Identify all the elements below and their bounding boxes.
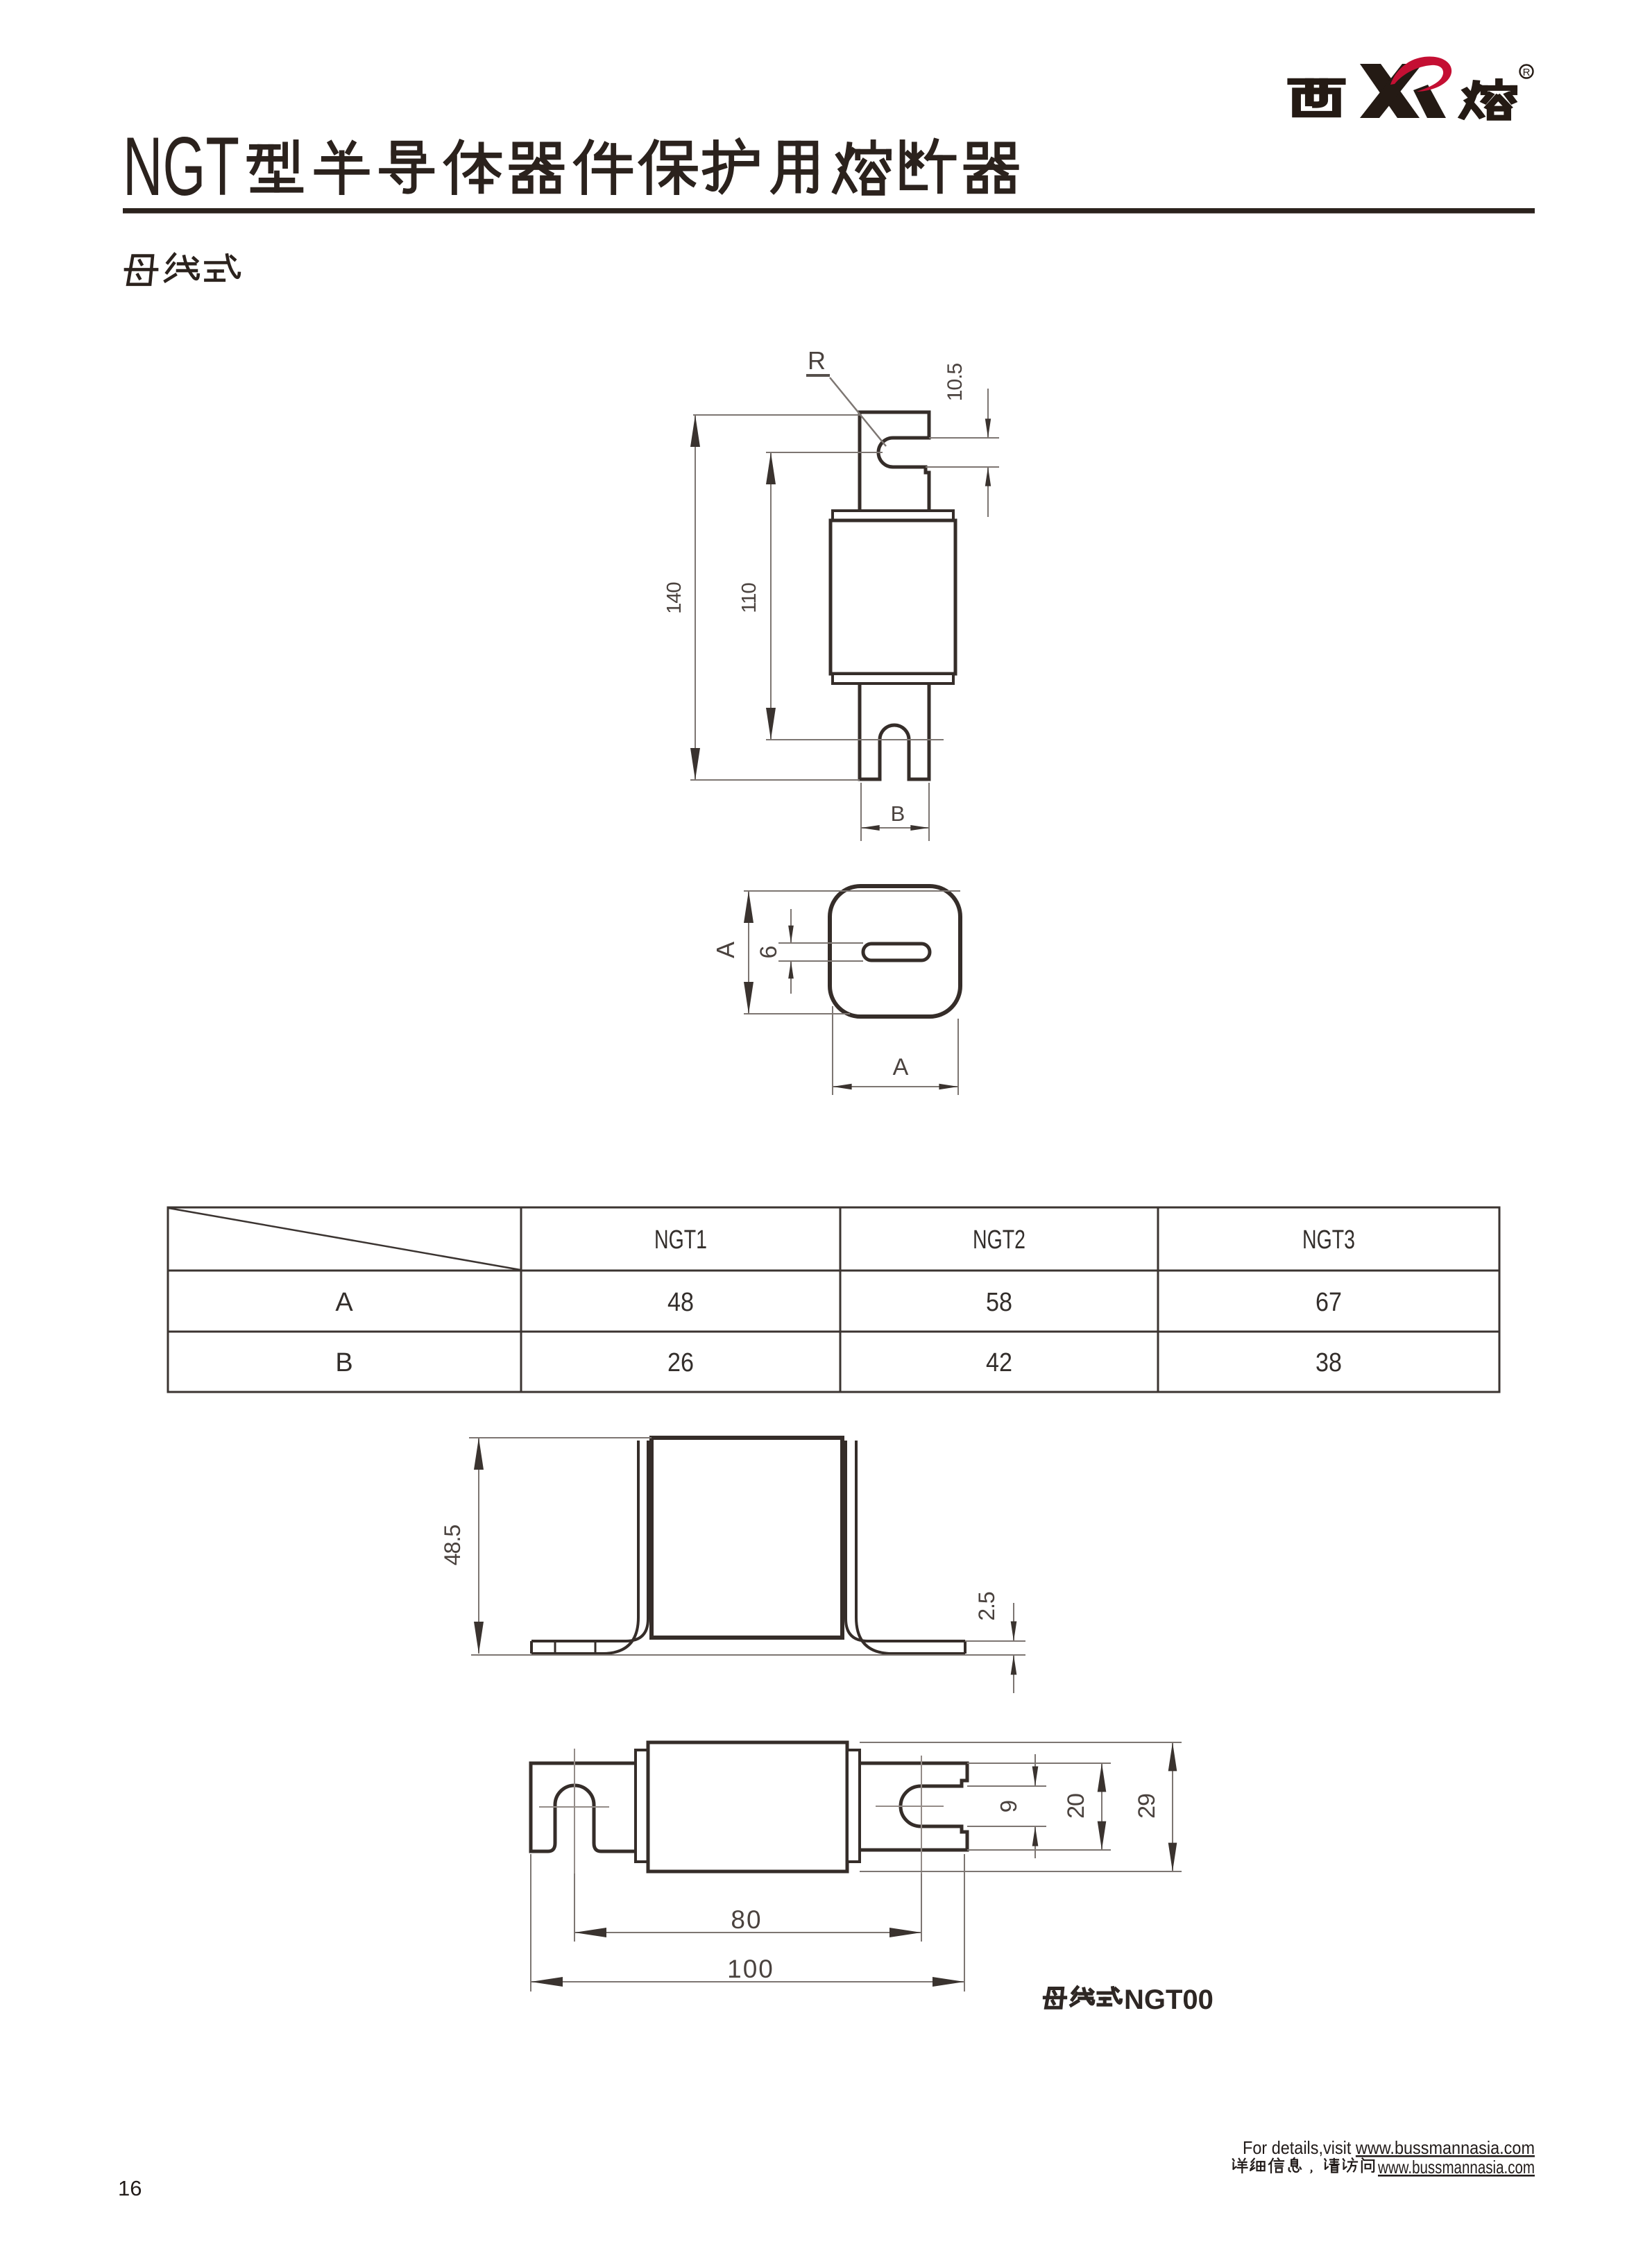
svg-text:48.5: 48.5 <box>440 1525 465 1565</box>
svg-text:42: 42 <box>986 1348 1012 1377</box>
svg-text:A: A <box>893 1054 909 1080</box>
svg-text:2.5: 2.5 <box>974 1592 999 1621</box>
svg-text:For details,visit www.bussmann: For details,visit www.bussmannasia.com <box>1243 2137 1535 2158</box>
svg-text:B: B <box>335 1348 352 1377</box>
svg-text:67: 67 <box>1315 1288 1342 1317</box>
svg-text:9: 9 <box>996 1800 1021 1812</box>
svg-text:10.5: 10.5 <box>944 363 966 401</box>
svg-text:80: 80 <box>731 1905 762 1934</box>
svg-text:B: B <box>891 801 905 826</box>
svg-text:26: 26 <box>667 1348 694 1377</box>
svg-text:NGT00: NGT00 <box>1124 1985 1214 2015</box>
svg-text:NGT3: NGT3 <box>1302 1225 1355 1255</box>
svg-text:NGT1: NGT1 <box>654 1225 707 1255</box>
svg-text:29: 29 <box>1134 1794 1160 1819</box>
svg-text:110: 110 <box>738 583 760 613</box>
svg-text:16: 16 <box>118 2176 142 2200</box>
svg-text:R: R <box>808 346 826 375</box>
svg-text:38: 38 <box>1315 1348 1342 1377</box>
svg-text:A: A <box>711 942 740 958</box>
svg-text:www.bussmannasia.com: www.bussmannasia.com <box>1377 2157 1535 2177</box>
svg-text:48: 48 <box>667 1288 694 1317</box>
svg-text:6: 6 <box>756 946 782 959</box>
svg-text:A: A <box>335 1288 353 1317</box>
svg-text:58: 58 <box>986 1288 1012 1317</box>
svg-text:140: 140 <box>663 582 686 613</box>
svg-text:100: 100 <box>727 1955 774 1983</box>
svg-text:20: 20 <box>1063 1794 1089 1819</box>
svg-text:NGT2: NGT2 <box>973 1225 1025 1255</box>
